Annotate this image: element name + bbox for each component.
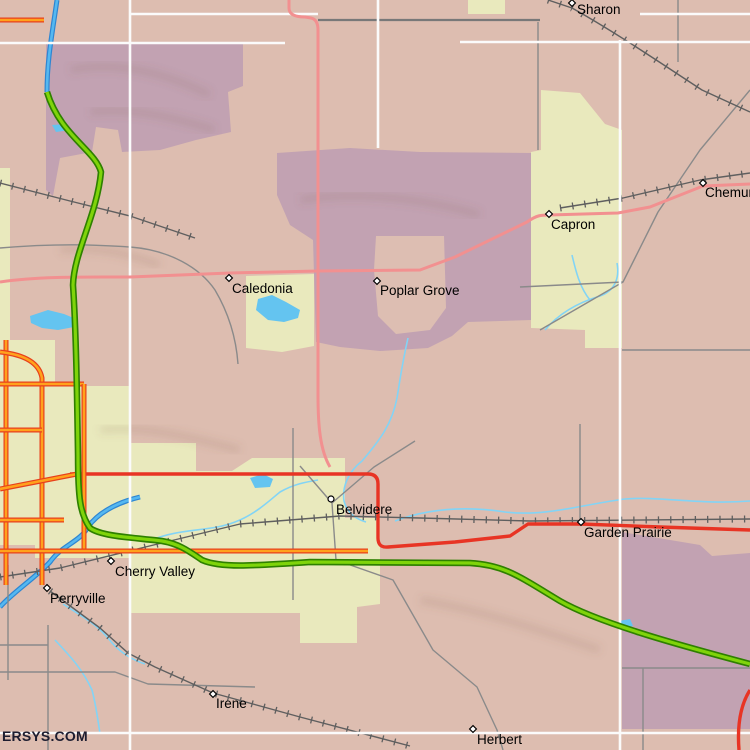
stream-road (55, 640, 100, 734)
map-canvas[interactable]: SharonChemungCapronCaledoniaPoplar Grove… (0, 0, 750, 750)
map-container: SharonChemungCapronCaledoniaPoplar Grove… (0, 0, 750, 750)
town-marker-herbert (470, 726, 477, 733)
town-label-garden-prairie: Garden Prairie (584, 525, 672, 540)
yellow-region (468, 0, 505, 14)
town-label-irene: Irene (216, 696, 247, 711)
lake (30, 310, 76, 330)
town-label-caledonia: Caledonia (232, 281, 293, 296)
town-marker-belvidere (328, 496, 334, 502)
town-label-chemung: Chemung (705, 185, 750, 200)
town-marker-sharon (569, 0, 576, 6)
gray-road (0, 672, 255, 687)
town-label-herbert: Herbert (477, 732, 522, 747)
town-marker-cherry-valley (108, 558, 115, 565)
town-label-belvidere: Belvidere (336, 502, 392, 517)
town-label-capron: Capron (551, 217, 595, 232)
town-label-cherry-valley: Cherry Valley (115, 564, 195, 579)
town-label-poplar-grove: Poplar Grove (380, 283, 460, 298)
town-label-perryville: Perryville (50, 591, 106, 606)
attribution-watermark: ERSYS.COM (2, 728, 88, 744)
stream-road (344, 338, 408, 522)
town-label-sharon: Sharon (577, 2, 621, 17)
